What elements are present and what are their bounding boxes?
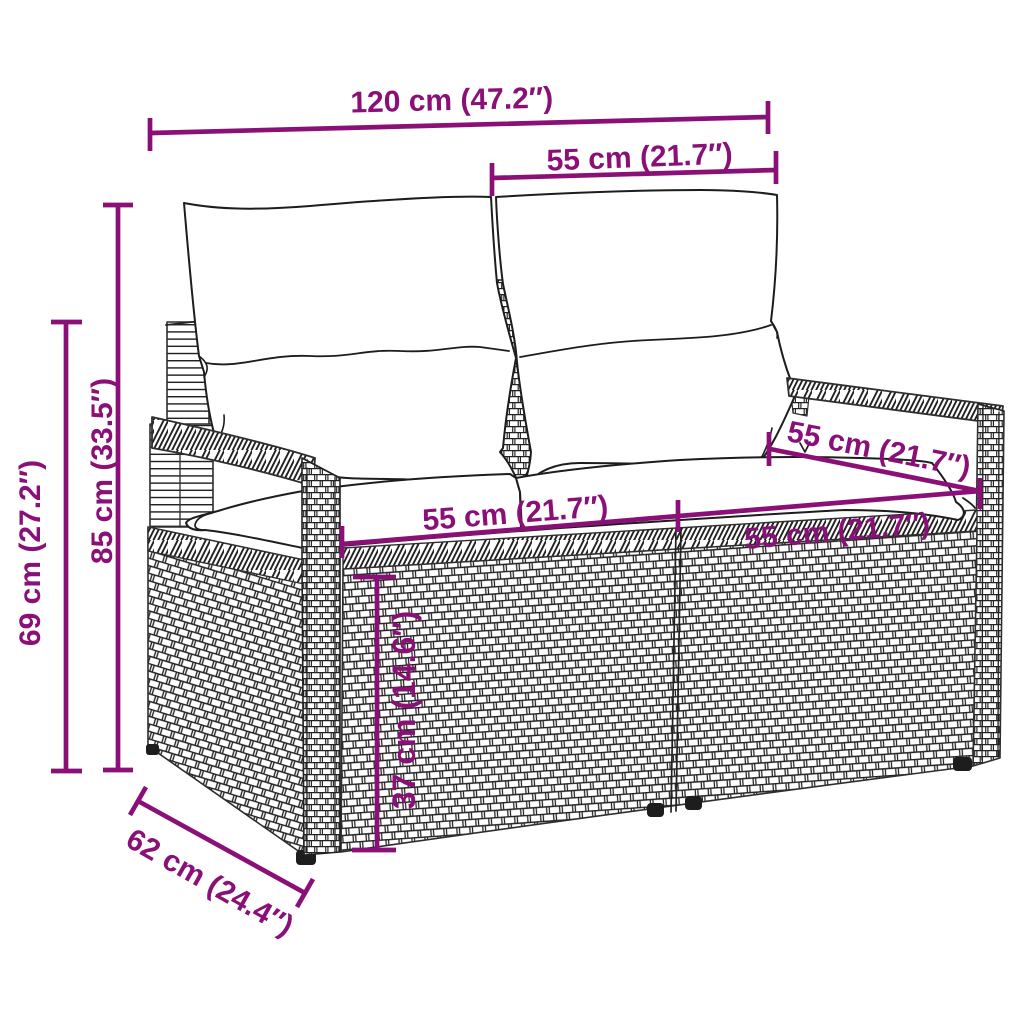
svg-text:37 cm (14.6″): 37 cm (14.6″) bbox=[386, 611, 422, 810]
svg-text:69 cm (27.2″): 69 cm (27.2″) bbox=[14, 460, 47, 646]
svg-text:120 cm (47.2″): 120 cm (47.2″) bbox=[350, 82, 554, 120]
svg-text:85 cm (33.5″): 85 cm (33.5″) bbox=[86, 378, 119, 564]
